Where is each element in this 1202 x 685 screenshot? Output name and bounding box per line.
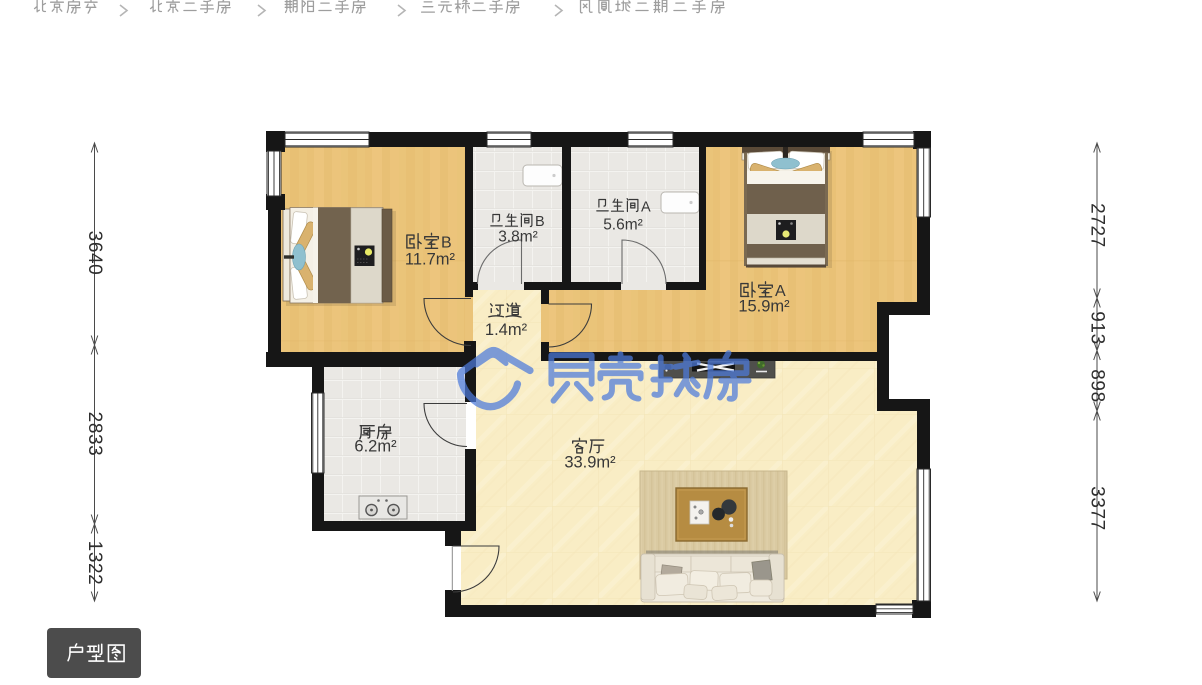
- svg-text:33.9m²: 33.9m²: [564, 454, 616, 472]
- svg-text:3640: 3640: [84, 231, 105, 276]
- svg-text:11.7m²: 11.7m²: [405, 251, 456, 269]
- svg-text:898: 898: [1087, 369, 1108, 403]
- svg-text:A: A: [641, 200, 651, 216]
- svg-text:2833: 2833: [84, 412, 105, 457]
- svg-text:1.4m²: 1.4m²: [485, 321, 528, 339]
- svg-text:B: B: [441, 235, 452, 252]
- svg-text:15.9m²: 15.9m²: [738, 298, 790, 316]
- svg-text:1322: 1322: [84, 541, 105, 586]
- svg-text:5.6m²: 5.6m²: [603, 217, 643, 234]
- svg-text:913: 913: [1087, 311, 1108, 345]
- svg-text:2727: 2727: [1087, 203, 1108, 248]
- svg-text:3.8m²: 3.8m²: [498, 229, 538, 246]
- svg-text:3377: 3377: [1087, 486, 1108, 531]
- svg-text:6.2m²: 6.2m²: [354, 438, 397, 456]
